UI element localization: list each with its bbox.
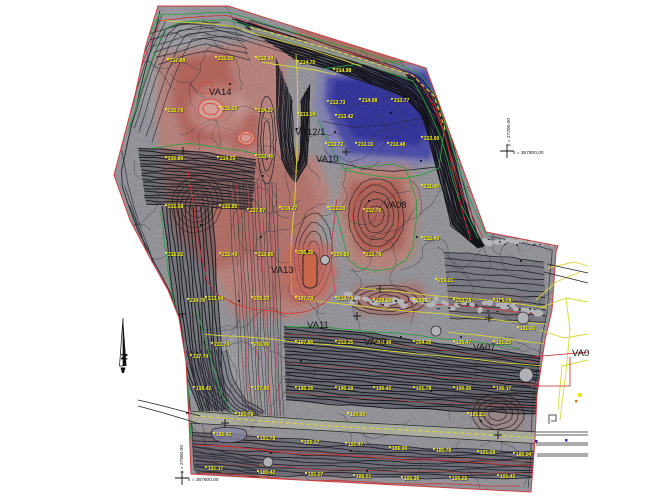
svg-text:y = 27900.00: y = 27900.00 bbox=[179, 445, 185, 473]
svg-text:203.21: 203.21 bbox=[438, 278, 454, 284]
svg-text:216.52: 216.52 bbox=[168, 252, 184, 258]
svg-text:196.42: 196.42 bbox=[376, 386, 392, 392]
svg-text:213.60: 213.60 bbox=[424, 136, 440, 142]
svg-text:185.36: 185.36 bbox=[404, 476, 420, 482]
svg-text:191.21: 191.21 bbox=[470, 412, 486, 418]
svg-text:213.77: 213.77 bbox=[394, 98, 410, 104]
svg-text:196.17: 196.17 bbox=[496, 386, 512, 392]
svg-text:206.85: 206.85 bbox=[334, 252, 350, 258]
svg-text:214.23: 214.23 bbox=[220, 156, 236, 162]
svg-text:213.78: 213.78 bbox=[338, 296, 354, 302]
svg-text:213.54: 213.54 bbox=[208, 296, 224, 302]
svg-text:VA14: VA14 bbox=[209, 87, 232, 98]
svg-text:186.42: 186.42 bbox=[216, 432, 232, 438]
svg-text:213.15: 213.15 bbox=[358, 142, 374, 148]
svg-text:185.17: 185.17 bbox=[304, 440, 320, 446]
svg-text:213.73: 213.73 bbox=[330, 100, 346, 106]
svg-text:206.96: 206.96 bbox=[254, 342, 270, 348]
svg-text:185.78: 185.78 bbox=[436, 448, 452, 454]
svg-text:203.78: 203.78 bbox=[456, 298, 472, 304]
svg-text:213.78: 213.78 bbox=[366, 252, 382, 258]
svg-text:214.27: 214.27 bbox=[282, 206, 298, 212]
svg-text:215.26: 215.26 bbox=[222, 106, 238, 112]
svg-text:213.86: 213.86 bbox=[258, 252, 274, 258]
svg-text:VA12/1: VA12/1 bbox=[295, 127, 325, 138]
svg-text:215.68: 215.68 bbox=[168, 204, 184, 210]
svg-text:VA10: VA10 bbox=[316, 154, 339, 165]
svg-text:196.78: 196.78 bbox=[496, 298, 512, 304]
svg-text:191.47: 191.47 bbox=[348, 442, 364, 448]
svg-text:VA11: VA11 bbox=[307, 320, 329, 331]
svg-text:191.78: 191.78 bbox=[260, 436, 276, 442]
svg-text:191.28: 191.28 bbox=[480, 450, 496, 456]
svg-text:213.46: 213.46 bbox=[258, 154, 274, 160]
svg-text:214.98: 214.98 bbox=[336, 68, 352, 74]
svg-text:214.08: 214.08 bbox=[362, 98, 378, 104]
svg-text:VA09: VA09 bbox=[364, 337, 387, 348]
svg-text:211.46: 211.46 bbox=[424, 184, 439, 190]
svg-text:198.42: 198.42 bbox=[196, 386, 212, 392]
svg-text:215.49: 215.49 bbox=[222, 252, 238, 258]
svg-text:214.70: 214.70 bbox=[300, 60, 316, 66]
svg-text:191.42: 191.42 bbox=[500, 474, 516, 480]
svg-text:186.54: 186.54 bbox=[516, 452, 532, 458]
svg-text:191.78: 191.78 bbox=[416, 386, 432, 392]
svg-text:191.36: 191.36 bbox=[520, 326, 536, 332]
svg-text:206.26: 206.26 bbox=[298, 250, 314, 256]
svg-text:217.88: 217.88 bbox=[170, 58, 186, 64]
svg-text:197.86: 197.86 bbox=[254, 386, 270, 392]
svg-text:216.86: 216.86 bbox=[168, 156, 184, 162]
svg-text:185.42: 185.42 bbox=[260, 470, 276, 476]
svg-text:196.18: 196.18 bbox=[338, 386, 354, 392]
svg-text:186.36: 186.36 bbox=[392, 446, 408, 452]
svg-text:213.28: 213.28 bbox=[330, 206, 346, 212]
svg-text:197.78: 197.78 bbox=[298, 296, 314, 302]
svg-text:196.47: 196.47 bbox=[456, 340, 472, 346]
svg-text:VA08: VA08 bbox=[384, 200, 407, 211]
svg-text:197.86: 197.86 bbox=[298, 340, 314, 346]
svg-text:214.27: 214.27 bbox=[258, 108, 274, 114]
svg-text:186.21: 186.21 bbox=[356, 474, 372, 480]
svg-text:213.72: 213.72 bbox=[328, 142, 344, 148]
svg-text:206.17: 206.17 bbox=[416, 298, 432, 304]
svg-text:191.57: 191.57 bbox=[308, 472, 324, 478]
svg-text:213.54: 213.54 bbox=[300, 112, 316, 118]
svg-text:214.76: 214.76 bbox=[190, 298, 206, 304]
svg-text:217.74: 217.74 bbox=[193, 354, 209, 360]
svg-text:206.20: 206.20 bbox=[254, 296, 270, 302]
svg-text:215.49: 215.49 bbox=[424, 236, 440, 242]
svg-text:217.76: 217.76 bbox=[366, 208, 382, 214]
svg-text:204.36: 204.36 bbox=[416, 340, 432, 346]
svg-text:213.74: 213.74 bbox=[214, 342, 230, 348]
svg-text:213.48: 213.48 bbox=[390, 142, 406, 148]
svg-text:VA13: VA13 bbox=[271, 265, 294, 276]
svg-text:215.26: 215.26 bbox=[218, 56, 234, 62]
svg-text:208.36: 208.36 bbox=[376, 298, 392, 304]
svg-text:185.78: 185.78 bbox=[238, 412, 254, 418]
svg-text:213.38: 213.38 bbox=[258, 56, 274, 62]
svg-text:215.85: 215.85 bbox=[222, 204, 238, 210]
svg-text:x = 367800,00: x = 367800,00 bbox=[513, 150, 544, 156]
svg-text:191.17: 191.17 bbox=[208, 466, 224, 472]
svg-text:191.25: 191.25 bbox=[496, 340, 512, 346]
svg-text:213.25: 213.25 bbox=[338, 340, 354, 346]
svg-text:216.78: 216.78 bbox=[168, 108, 184, 114]
svg-text:217.87: 217.87 bbox=[250, 208, 266, 214]
svg-text:y = 27200,00: y = 27200,00 bbox=[506, 118, 512, 146]
svg-text:x = 367600.00: x = 367600.00 bbox=[188, 477, 219, 483]
svg-text:VA07: VA07 bbox=[473, 342, 496, 353]
svg-text:196.36: 196.36 bbox=[456, 386, 472, 392]
svg-text:196.26: 196.26 bbox=[298, 386, 314, 392]
svg-text:N: N bbox=[120, 354, 130, 361]
svg-text:190.25: 190.25 bbox=[452, 476, 468, 482]
svg-text:190.36: 190.36 bbox=[350, 412, 366, 418]
svg-text:213.42: 213.42 bbox=[338, 114, 354, 120]
